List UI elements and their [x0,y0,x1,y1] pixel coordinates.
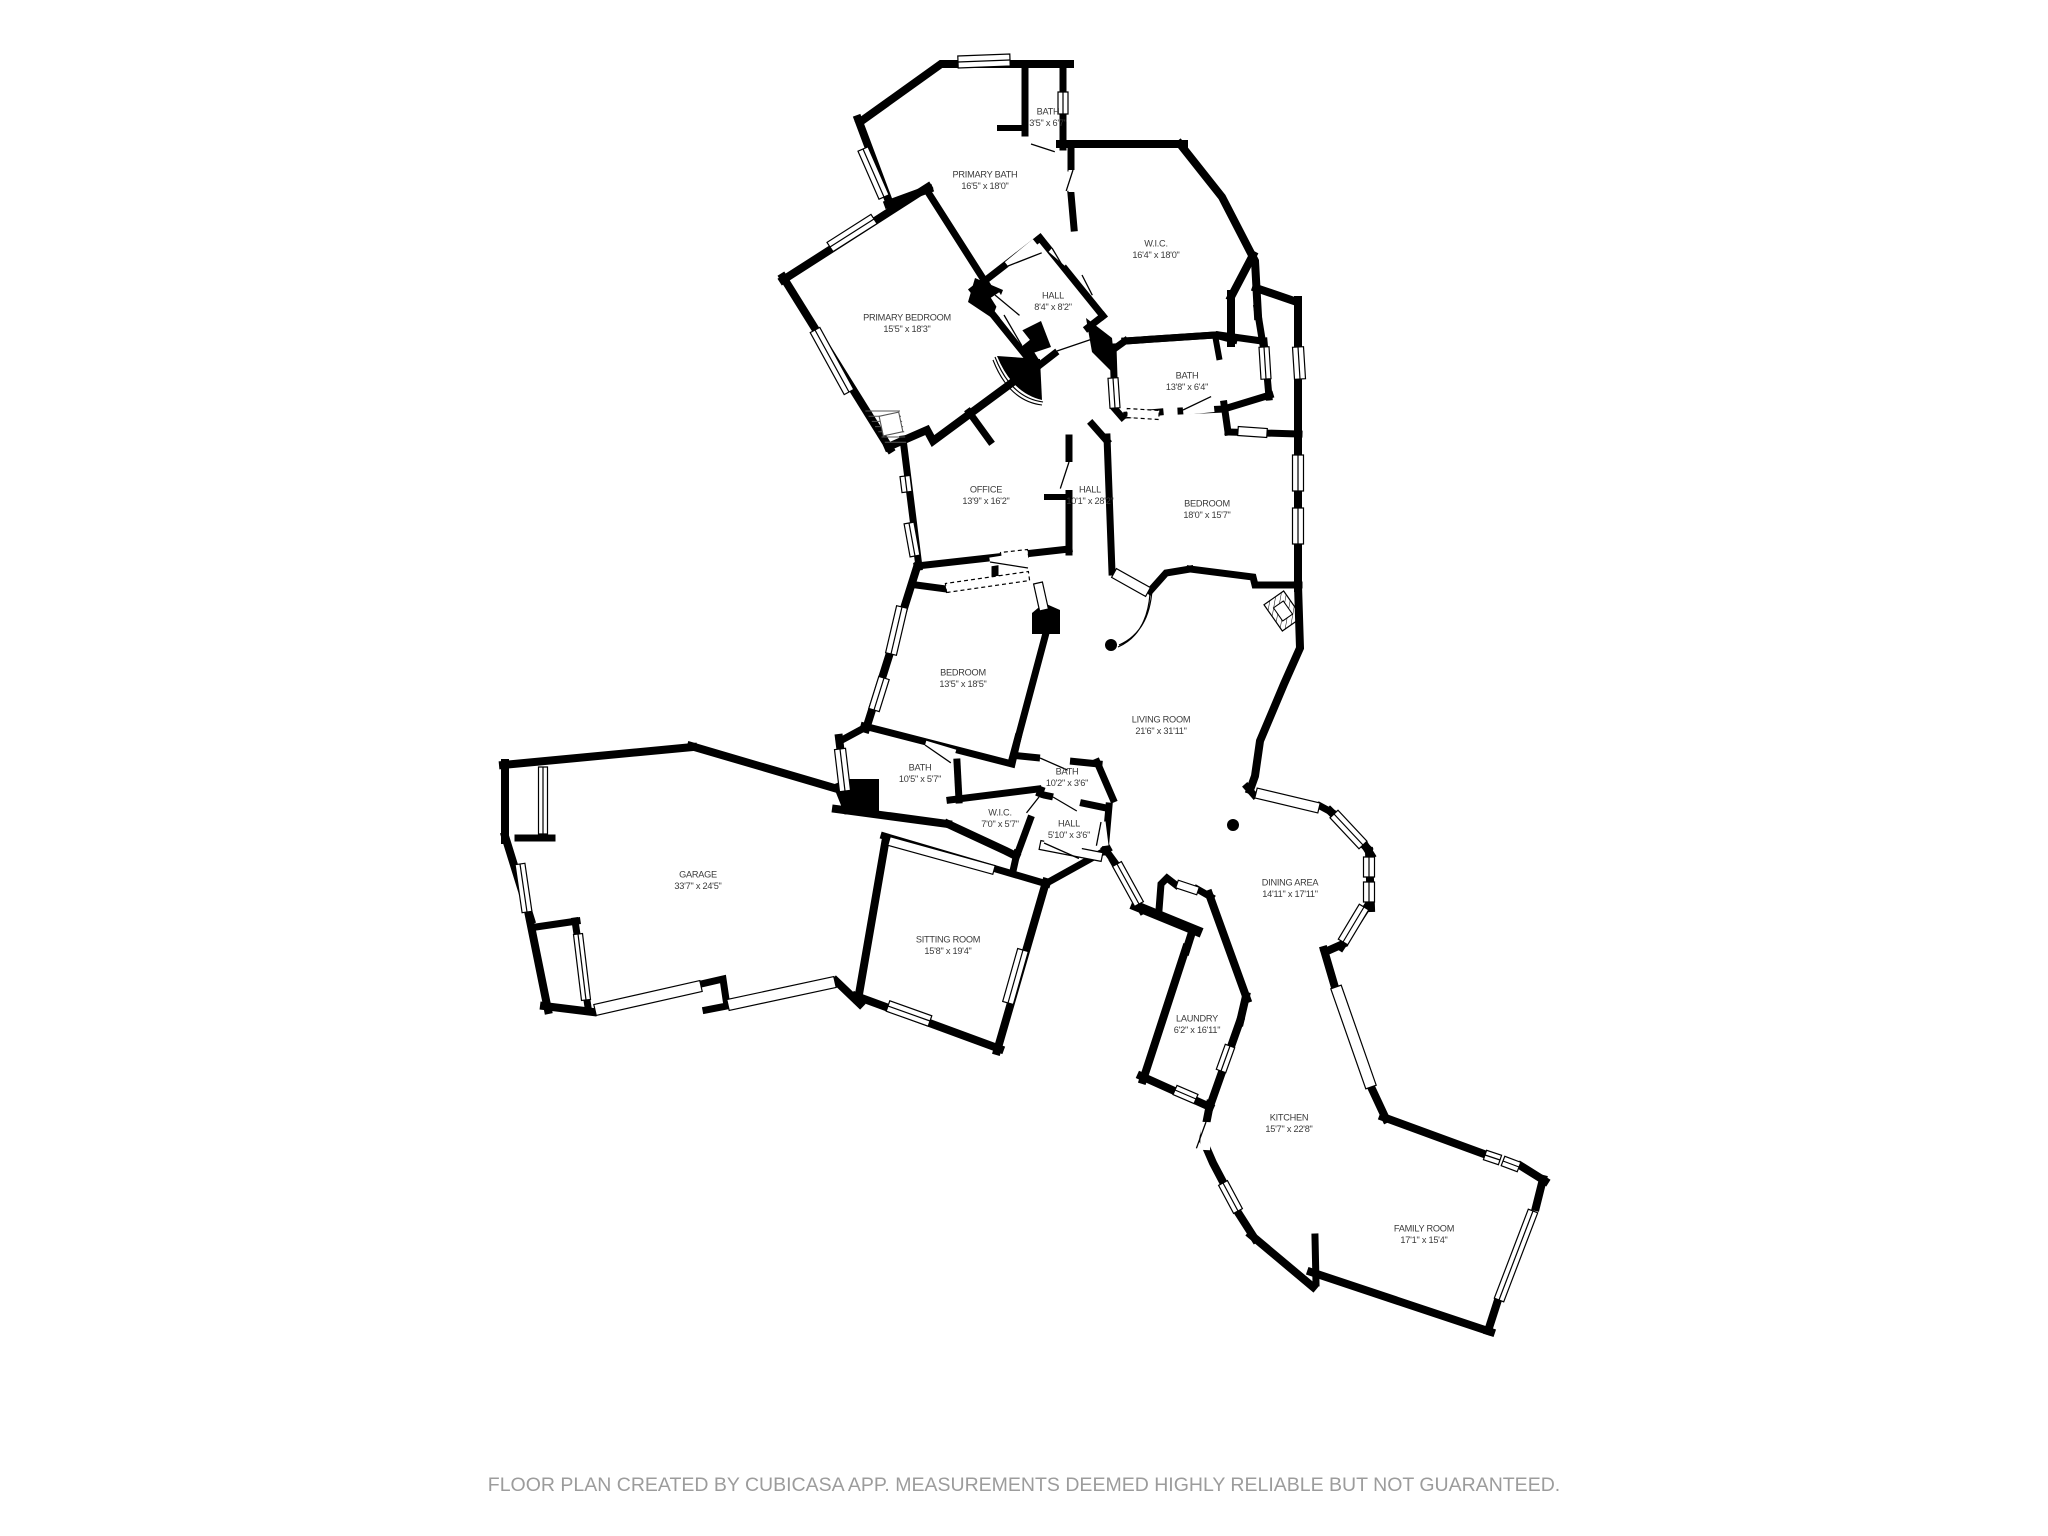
svg-text:13'5" x 18'5": 13'5" x 18'5" [939,679,986,689]
svg-text:21'6" x 31'11": 21'6" x 31'11" [1135,726,1186,736]
svg-text:HALL: HALL [1079,485,1101,495]
svg-text:FLOOR PLAN CREATED BY CUBICASA: FLOOR PLAN CREATED BY CUBICASA APP. MEAS… [488,1474,1560,1496]
svg-text:BEDROOM: BEDROOM [1184,499,1230,509]
svg-text:13'9" x 16'2": 13'9" x 16'2" [962,496,1009,506]
svg-text:SITTING ROOM: SITTING ROOM [916,935,980,945]
svg-text:17'1" x 15'4": 17'1" x 15'4" [1400,1235,1447,1245]
svg-text:10'1" x 28'2": 10'1" x 28'2" [1066,496,1113,506]
svg-text:OFFICE: OFFICE [970,485,1002,495]
svg-text:HALL: HALL [1058,819,1080,829]
svg-text:33'7" x 24'5": 33'7" x 24'5" [674,881,721,891]
svg-text:BATH: BATH [1176,371,1199,381]
svg-text:HALL: HALL [1042,291,1064,301]
svg-text:16'4" x 18'0": 16'4" x 18'0" [1132,250,1179,260]
svg-text:W.I.C.: W.I.C. [1144,239,1168,249]
svg-text:W.I.C.: W.I.C. [988,808,1012,818]
svg-text:PRIMARY BATH: PRIMARY BATH [953,170,1018,180]
svg-text:GARAGE: GARAGE [679,870,717,880]
svg-text:KITCHEN: KITCHEN [1270,1113,1309,1123]
svg-text:16'5" x 18'0": 16'5" x 18'0" [961,181,1008,191]
svg-text:3'5" x 6'7": 3'5" x 6'7" [1029,118,1066,128]
svg-text:LIVING ROOM: LIVING ROOM [1132,715,1191,725]
svg-text:LAUNDRY: LAUNDRY [1176,1014,1218,1024]
svg-text:10'5" x 5'7": 10'5" x 5'7" [899,774,941,784]
svg-text:BEDROOM: BEDROOM [940,668,986,678]
svg-text:14'11" x 17'11": 14'11" x 17'11" [1262,889,1318,899]
svg-text:15'8" x 19'4": 15'8" x 19'4" [924,946,971,956]
svg-text:5'10" x 3'6": 5'10" x 3'6" [1048,830,1090,840]
svg-text:7'0" x 5'7": 7'0" x 5'7" [981,819,1018,829]
svg-text:10'2" x 3'6": 10'2" x 3'6" [1046,778,1088,788]
svg-text:6'2" x 16'11": 6'2" x 16'11" [1174,1025,1220,1035]
svg-text:BATH: BATH [909,763,932,773]
svg-text:15'7" x 22'8": 15'7" x 22'8" [1265,1124,1312,1134]
svg-text:15'5" x 18'3": 15'5" x 18'3" [883,324,930,334]
svg-text:BATH: BATH [1037,107,1060,117]
svg-text:13'8" x 6'4": 13'8" x 6'4" [1166,382,1208,392]
svg-text:BATH: BATH [1056,767,1079,777]
svg-text:18'0" x 15'7": 18'0" x 15'7" [1183,510,1230,520]
svg-text:DINING AREA: DINING AREA [1262,878,1320,888]
svg-text:8'4" x 8'2": 8'4" x 8'2" [1034,302,1071,312]
svg-text:FAMILY ROOM: FAMILY ROOM [1394,1224,1454,1234]
svg-text:PRIMARY BEDROOM: PRIMARY BEDROOM [863,313,951,323]
